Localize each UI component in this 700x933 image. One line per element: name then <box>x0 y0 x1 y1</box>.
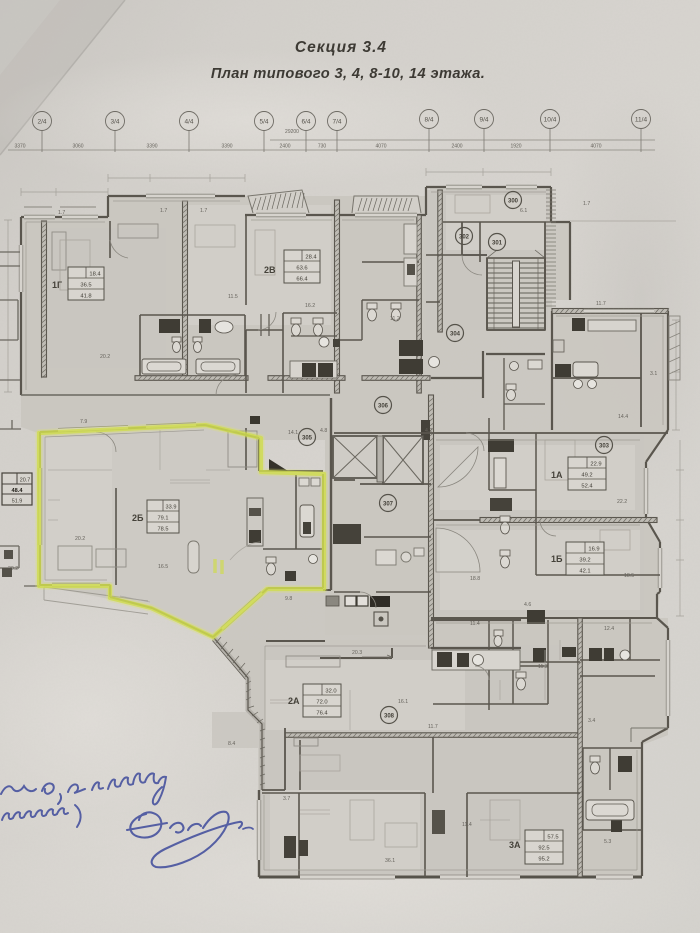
svg-text:29200: 29200 <box>285 129 299 135</box>
svg-text:4.6: 4.6 <box>524 602 531 608</box>
svg-text:41.8: 41.8 <box>80 294 91 300</box>
svg-text:8.4: 8.4 <box>228 741 235 747</box>
svg-text:57.5: 57.5 <box>547 835 558 841</box>
svg-text:305: 305 <box>302 435 313 441</box>
svg-text:63.6: 63.6 <box>296 266 307 272</box>
svg-text:10/4: 10/4 <box>544 117 557 124</box>
svg-text:3.7: 3.7 <box>283 796 290 802</box>
svg-text:16.1: 16.1 <box>398 699 408 705</box>
svg-text:307: 307 <box>383 501 394 507</box>
svg-text:301: 301 <box>492 240 503 246</box>
svg-text:20.2: 20.2 <box>75 536 85 542</box>
svg-text:49.2: 49.2 <box>581 473 592 479</box>
svg-text:4.8: 4.8 <box>320 428 327 434</box>
svg-text:308: 308 <box>384 713 395 719</box>
svg-text:1.7: 1.7 <box>583 201 590 207</box>
svg-text:11.4: 11.4 <box>470 621 480 627</box>
svg-text:5.3: 5.3 <box>604 839 611 845</box>
svg-text:Секция 3.4: Секция 3.4 <box>295 39 387 56</box>
svg-text:8/4: 8/4 <box>424 117 433 124</box>
svg-text:3370: 3370 <box>14 144 25 150</box>
svg-text:16.2: 16.2 <box>305 303 315 309</box>
svg-text:52.4: 52.4 <box>581 484 593 490</box>
svg-text:5/4: 5/4 <box>259 119 268 126</box>
svg-text:28.4: 28.4 <box>305 255 317 261</box>
svg-text:4070: 4070 <box>375 144 386 150</box>
svg-text:48.4: 48.4 <box>12 488 24 494</box>
svg-text:2400: 2400 <box>451 144 462 150</box>
svg-text:16.5: 16.5 <box>158 564 168 570</box>
svg-text:3.1: 3.1 <box>650 371 657 377</box>
svg-text:304: 304 <box>450 331 461 337</box>
svg-text:20.3: 20.3 <box>352 650 362 656</box>
svg-text:4/4: 4/4 <box>184 119 193 126</box>
svg-text:14.1: 14.1 <box>288 430 298 436</box>
svg-text:9/4: 9/4 <box>479 117 488 124</box>
svg-text:7.9: 7.9 <box>80 419 87 425</box>
svg-text:39.2: 39.2 <box>579 558 590 564</box>
svg-text:11.3: 11.3 <box>538 664 548 670</box>
svg-text:1Б: 1Б <box>551 554 563 564</box>
svg-text:12.4: 12.4 <box>604 626 614 632</box>
svg-text:7/4: 7/4 <box>332 119 341 126</box>
svg-text:32.0: 32.0 <box>325 689 336 695</box>
svg-text:51.9: 51.9 <box>12 498 23 504</box>
svg-text:2/4: 2/4 <box>37 119 46 126</box>
svg-text:11.4: 11.4 <box>462 822 472 828</box>
svg-text:36.5: 36.5 <box>80 283 91 289</box>
svg-text:2Б: 2Б <box>132 513 144 523</box>
svg-text:36.1: 36.1 <box>385 858 395 864</box>
svg-text:2400: 2400 <box>279 144 290 150</box>
svg-text:18.8: 18.8 <box>470 576 480 582</box>
svg-text:2В: 2В <box>264 265 276 275</box>
svg-text:3А: 3А <box>509 840 521 850</box>
svg-text:6.1: 6.1 <box>520 208 527 214</box>
svg-text:22.2: 22.2 <box>617 499 627 505</box>
svg-text:6/4: 6/4 <box>301 119 310 126</box>
svg-text:1.7: 1.7 <box>58 210 65 216</box>
svg-text:79.1: 79.1 <box>158 516 169 522</box>
svg-text:11.2: 11.2 <box>390 316 400 322</box>
svg-text:33.9: 33.9 <box>166 505 177 511</box>
svg-text:4.2: 4.2 <box>425 428 432 434</box>
svg-text:18.5: 18.5 <box>624 573 634 579</box>
svg-text:306: 306 <box>378 403 389 409</box>
svg-text:20.2: 20.2 <box>100 354 110 360</box>
svg-text:3/4: 3/4 <box>110 119 119 126</box>
svg-text:16.9: 16.9 <box>588 547 599 553</box>
svg-text:95.2: 95.2 <box>538 857 549 863</box>
svg-text:3060: 3060 <box>72 144 83 150</box>
svg-text:300: 300 <box>508 198 519 204</box>
svg-text:66.4: 66.4 <box>296 277 308 283</box>
svg-text:План типового 3, 4, 8-10, 14 э: План типового 3, 4, 8-10, 14 этажа. <box>211 66 485 82</box>
svg-text:11.5: 11.5 <box>228 294 238 300</box>
svg-text:22.9: 22.9 <box>590 462 601 468</box>
svg-text:3390: 3390 <box>221 144 232 150</box>
svg-text:18.4: 18.4 <box>89 272 101 278</box>
svg-text:3.4: 3.4 <box>588 718 595 724</box>
svg-text:92.5: 92.5 <box>538 846 549 852</box>
svg-text:11.7: 11.7 <box>428 724 438 730</box>
svg-text:20.7: 20.7 <box>20 478 31 484</box>
svg-text:303: 303 <box>599 443 610 449</box>
svg-text:42.1: 42.1 <box>579 569 590 575</box>
svg-text:4070: 4070 <box>590 144 601 150</box>
svg-text:1920: 1920 <box>510 144 521 150</box>
svg-text:11.7: 11.7 <box>596 301 606 307</box>
svg-text:14.4: 14.4 <box>618 414 628 420</box>
svg-text:302: 302 <box>459 234 470 240</box>
svg-text:11/4: 11/4 <box>635 117 648 124</box>
svg-text:9.8: 9.8 <box>285 596 292 602</box>
svg-text:1.7: 1.7 <box>200 208 207 214</box>
svg-text:1Г: 1Г <box>52 280 62 290</box>
svg-text:76.4: 76.4 <box>316 711 328 717</box>
svg-text:3390: 3390 <box>146 144 157 150</box>
svg-text:730: 730 <box>318 144 327 150</box>
svg-text:1.7: 1.7 <box>160 208 167 214</box>
svg-text:1А: 1А <box>551 470 563 480</box>
svg-text:72.0: 72.0 <box>316 700 327 706</box>
svg-text:2А: 2А <box>288 696 300 706</box>
svg-text:78.5: 78.5 <box>158 527 169 533</box>
